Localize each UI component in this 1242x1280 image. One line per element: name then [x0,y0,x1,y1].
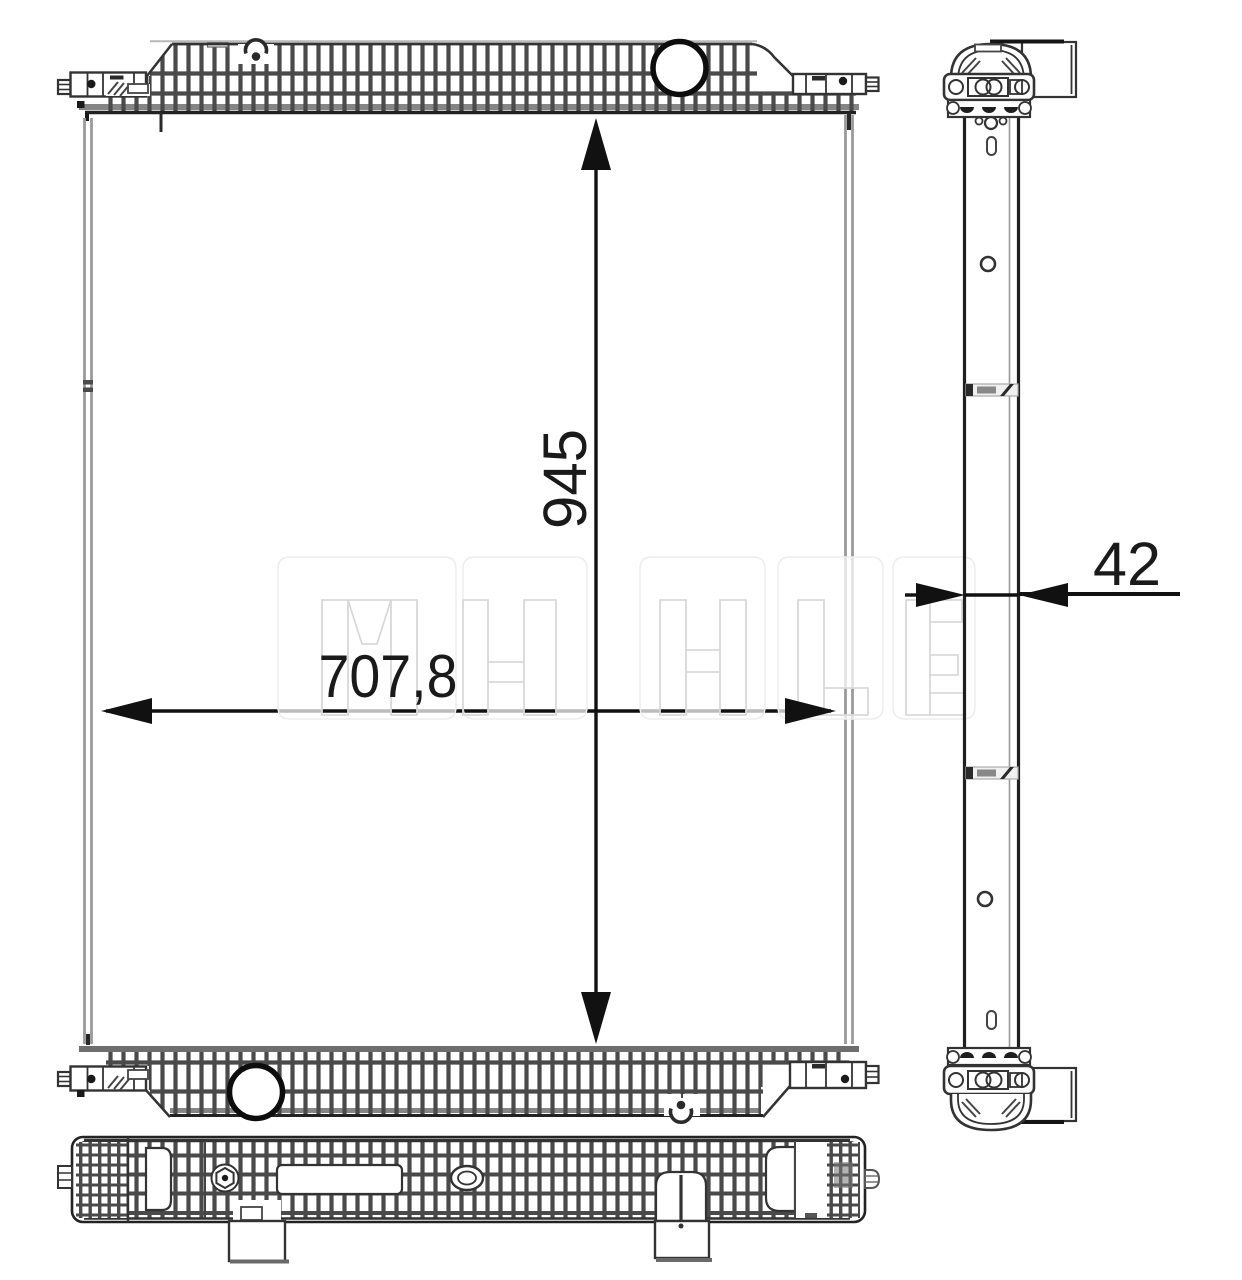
svg-text:707,8: 707,8 [319,643,458,710]
svg-text:42: 42 [1093,530,1161,598]
svg-text:945: 945 [531,429,599,529]
